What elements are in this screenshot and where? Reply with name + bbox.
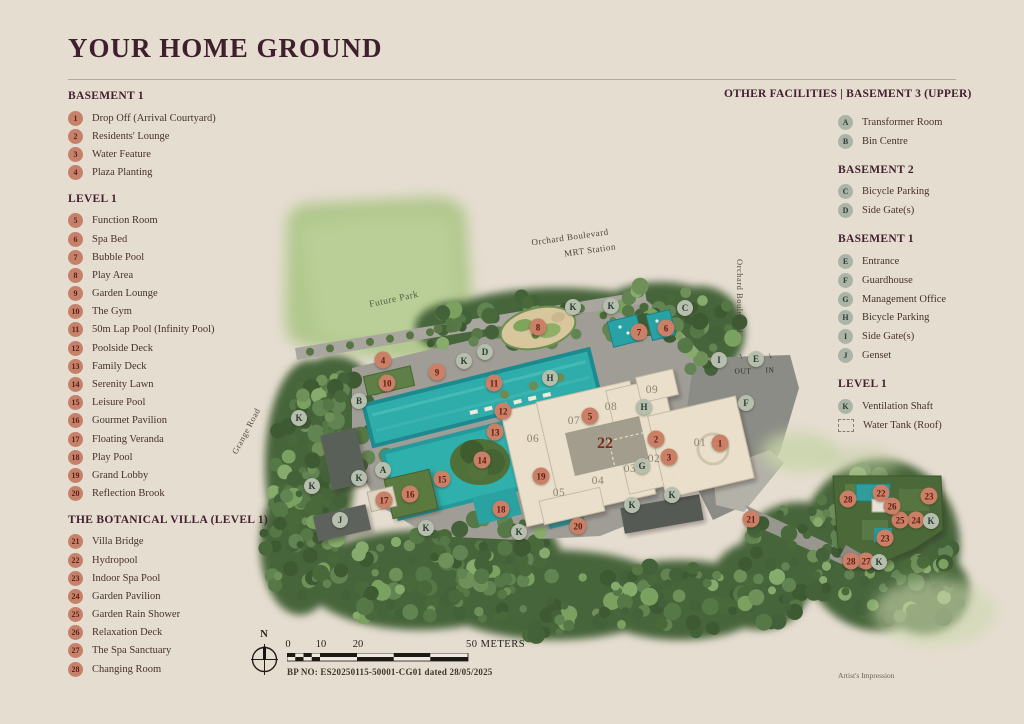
legend-item: HBicycle Parking [838,309,964,328]
map-marker-A: A [375,462,391,478]
legend-badge-F: F [838,273,853,288]
legend-item: GManagement Office [838,290,964,309]
legend-item: KVentilation Shaft [838,397,964,416]
map-marker-K: K [871,554,887,570]
scale-bar-icon [287,653,470,663]
legend-badge-J: J [838,348,853,363]
legend-badge-11: 11 [68,322,83,337]
map-marker-1: 1 [712,435,729,452]
legend-item-label: Guardhouse [862,275,913,286]
legend-item-label: Relaxation Deck [92,627,162,638]
legend-item-label: Play Area [92,270,133,281]
legend-item: Water Tank (Roof) [838,416,964,435]
map-marker-K: K [923,513,939,529]
legend-badge-14: 14 [68,377,83,392]
legend-item-label: Entrance [862,256,899,267]
legend-section-heading: BASEMENT 2 [838,164,964,176]
legend-item-label: Garden Pavilion [92,591,161,602]
legend-section-heading: LEVEL 1 [838,378,964,390]
legend-item-label: Side Gate(s) [862,331,914,342]
legend-section-heading: THE BOTANICAL VILLA (LEVEL 1) [68,514,318,526]
legend-left: BASEMENT 11Drop Off (Arrival Courtyard)2… [68,90,318,678]
legend-badge-7: 7 [68,250,83,265]
legend-item: 1150m Lap Pool (Infinity Pool) [68,321,318,339]
unit-label-06: 06 [527,433,540,445]
map-marker-13: 13 [487,424,504,441]
map-marker-14: 14 [474,452,491,469]
legend-badge-5: 5 [68,213,83,228]
map-marker-28: 28 [840,491,857,508]
legend-badge-20: 20 [68,486,83,501]
legend-badge-28: 28 [68,662,83,677]
legend-item-label: Villa Bridge [92,536,144,547]
out-label: OUT [735,367,752,376]
legend-right-sections: ATransformer RoomBBin CentreBASEMENT 2CB… [838,113,964,435]
legend-item-label: Residents' Lounge [92,131,169,142]
legend-badge-4: 4 [68,165,83,180]
legend-item: 23Indoor Spa Pool [68,569,318,587]
legend-badge-13: 13 [68,359,83,374]
legend-item-label: Bubble Pool [92,252,144,263]
map-marker-K: K [664,487,680,503]
legend-item: 6Spa Bed [68,230,318,248]
legend-item-label: Indoor Spa Pool [92,573,160,584]
legend-item-label: Genset [862,350,891,361]
legend-badge-I: I [838,329,853,344]
map-marker-28: 28 [843,553,860,570]
map-marker-E: E [748,351,764,367]
scale-tick-0: 0 [285,639,290,650]
scale-end-label: 50 METERS [466,639,525,650]
scale-tick-10: 10 [316,639,327,650]
legend-badge-E: E [838,254,853,269]
legend-badge-8: 8 [68,268,83,283]
legend-right-heading: OTHER FACILITIES | BASEMENT 3 (UPPER) [724,88,964,100]
legend-badge-22: 22 [68,553,83,568]
map-marker-11: 11 [486,375,503,392]
map-marker-K: K [603,298,619,314]
legend-section-heading: LEVEL 1 [68,193,318,205]
legend-item: 12Poolside Deck [68,339,318,357]
legend-badge-18: 18 [68,450,83,465]
legend-item-label: Function Room [92,215,158,226]
unit-label-09: 09 [646,384,659,396]
legend-item-label: Bin Centre [862,136,908,147]
legend-item-label: Gourmet Pavilion [92,415,167,426]
map-marker-15: 15 [434,471,451,488]
map-marker-K: K [418,520,434,536]
map-marker-20: 20 [570,518,587,535]
legend-item-label: Plaza Planting [92,167,152,178]
legend-item: 16Gourmet Pavilion [68,412,318,430]
legend-item: ISide Gate(s) [838,327,964,346]
map-marker-4: 4 [375,352,392,369]
legend-badge-3: 3 [68,147,83,162]
legend-item-label: Hydropool [92,555,138,566]
legend-item-label: Floating Veranda [92,434,164,445]
legend-badge-9: 9 [68,286,83,301]
legend-item: 8Play Area [68,266,318,284]
legend-item: 18Play Pool [68,448,318,466]
legend-badge-H: H [838,310,853,325]
map-marker-10: 10 [379,375,396,392]
map-marker-23: 23 [877,530,894,547]
map-marker-18: 18 [493,501,510,518]
map-marker-12: 12 [495,403,512,420]
legend-item: 24Garden Pavilion [68,587,318,605]
unit-label-08: 08 [605,401,618,413]
map-marker-21: 21 [743,511,760,528]
map-marker-C: C [677,300,693,316]
compass-icon [248,642,281,678]
artists-impression-note: Artist's Impression [838,671,895,680]
legend-item: 17Floating Veranda [68,430,318,448]
legend-badge-10: 10 [68,304,83,319]
legend-item-label: Drop Off (Arrival Courtyard) [92,113,216,124]
legend-badge-12: 12 [68,341,83,356]
legend-item-label: Play Pool [92,452,133,463]
unit-label-05: 05 [553,487,566,499]
map-marker-9: 9 [429,364,446,381]
legend-item: 22Hydropool [68,551,318,569]
map-marker-K: K [511,524,527,540]
legend-badge-24: 24 [68,589,83,604]
legend-item-label: The Spa Sanctuary [92,645,171,656]
legend-badge-2: 2 [68,129,83,144]
map-marker-D: D [477,344,493,360]
legend-item-label: Bicycle Parking [862,312,929,323]
orchard-boulevard-label: Orchard Boulevard [735,259,745,333]
legend-item-label: Garden Rain Shower [92,609,180,620]
legend-item-label: Side Gate(s) [862,205,914,216]
legend-badge-19: 19 [68,468,83,483]
map-marker-23: 23 [921,488,938,505]
map-marker-24: 24 [908,512,925,529]
legend-right: OTHER FACILITIES | BASEMENT 3 (UPPER) AT… [724,88,964,435]
legend-section-heading: BASEMENT 1 [68,90,318,102]
map-marker-5: 5 [582,408,599,425]
legend-item: JGenset [838,346,964,365]
map-marker-26: 26 [884,498,901,515]
map-marker-J: J [332,512,348,528]
legend-badge-15: 15 [68,395,83,410]
legend-badge-B: B [838,134,853,149]
legend-badge-6: 6 [68,232,83,247]
north-label: N [260,629,268,640]
legend-badge-A: A [838,115,853,130]
water-tank-icon [838,419,854,432]
map-marker-K: K [624,497,640,513]
map-marker-3: 3 [661,449,678,466]
legend-badge-27: 27 [68,643,83,658]
legend-item: BBin Centre [838,132,964,151]
map-marker-17: 17 [376,492,393,509]
legend-item-label: Water Tank (Roof) [863,420,942,431]
bp-number: BP NO: ES20250115-50001-CG01 dated 28/05… [287,667,493,677]
legend-badge-D: D [838,203,853,218]
legend-item-label: Poolside Deck [92,343,153,354]
map-marker-I: I [711,352,727,368]
map-marker-K: K [291,410,307,426]
site-plan-page: YOUR HOME GROUND [0,0,1024,724]
legend-item: 10The Gym [68,303,318,321]
legend-item-label: Spa Bed [92,234,127,245]
map-marker-H: H [636,399,652,415]
map-marker-F: F [738,395,754,411]
legend-badge-17: 17 [68,432,83,447]
legend-item-label: Grand Lobby [92,470,148,481]
legend-item-label: Garden Lounge [92,288,158,299]
legend-item-label: Ventilation Shaft [862,401,933,412]
legend-badge-K: K [838,399,853,414]
legend-badge-16: 16 [68,413,83,428]
legend-item: 1Drop Off (Arrival Courtyard) [68,109,318,127]
map-marker-K: K [351,470,367,486]
map-marker-19: 19 [533,468,550,485]
legend-badge-25: 25 [68,607,83,622]
legend-item: EEntrance [838,252,964,271]
map-marker-8: 8 [530,319,547,336]
legend-item-label: Management Office [862,294,946,305]
map-marker-B: B [351,393,367,409]
unit-label-01: 01 [694,437,707,449]
legend-badge-26: 26 [68,625,83,640]
map-marker-H: H [542,370,558,386]
legend-badge-23: 23 [68,571,83,586]
legend-item: 26Relaxation Deck [68,624,318,642]
map-marker-K: K [456,353,472,369]
legend-item-label: Water Feature [92,149,151,160]
legend-item-label: Family Deck [92,361,147,372]
legend-item-label: Reflection Brook [92,488,165,499]
scale-tick-20: 20 [353,639,364,650]
legend-badge-C: C [838,184,853,199]
legend-item: 20Reflection Brook [68,485,318,503]
legend-item-label: Transformer Room [862,117,942,128]
legend-item: ATransformer Room [838,113,964,132]
legend-item: 9Garden Lounge [68,285,318,303]
legend-item: 19Grand Lobby [68,466,318,484]
map-marker-K: K [565,299,581,315]
legend-item-label: The Gym [92,306,132,317]
legend-item-label: Leisure Pool [92,397,145,408]
legend-item: 3Water Feature [68,145,318,163]
legend-item: FGuardhouse [838,271,964,290]
legend-badge-1: 1 [68,111,83,126]
legend-item: 15Leisure Pool [68,394,318,412]
legend-item: DSide Gate(s) [838,201,964,220]
legend-item-label: 50m Lap Pool (Infinity Pool) [92,324,215,335]
legend-item: 7Bubble Pool [68,248,318,266]
map-marker-7: 7 [631,324,648,341]
map-marker-6: 6 [658,320,675,337]
legend-item: 21Villa Bridge [68,533,318,551]
map-marker-16: 16 [402,486,419,503]
legend-item: CBicycle Parking [838,183,964,202]
legend-item: 13Family Deck [68,357,318,375]
legend-item: 4Plaza Planting [68,164,318,182]
unit-label-07: 07 [568,415,581,427]
legend-item-label: Changing Room [92,664,161,675]
legend-badge-G: G [838,292,853,307]
legend-item: 14Serenity Lawn [68,375,318,393]
legend-item: 2Residents' Lounge [68,127,318,145]
legend-item: 25Garden Rain Shower [68,606,318,624]
in-label: IN [766,366,775,375]
map-marker-G: G [634,458,650,474]
unit-label-04: 04 [592,475,605,487]
block-number-label: 22 [597,435,613,453]
legend-item-label: Serenity Lawn [92,379,154,390]
legend-section-heading: BASEMENT 1 [838,233,964,245]
legend-item: 5Function Room [68,212,318,230]
legend-badge-21: 21 [68,534,83,549]
legend-item-label: Bicycle Parking [862,186,929,197]
map-marker-2: 2 [648,431,665,448]
map-marker-K: K [304,478,320,494]
